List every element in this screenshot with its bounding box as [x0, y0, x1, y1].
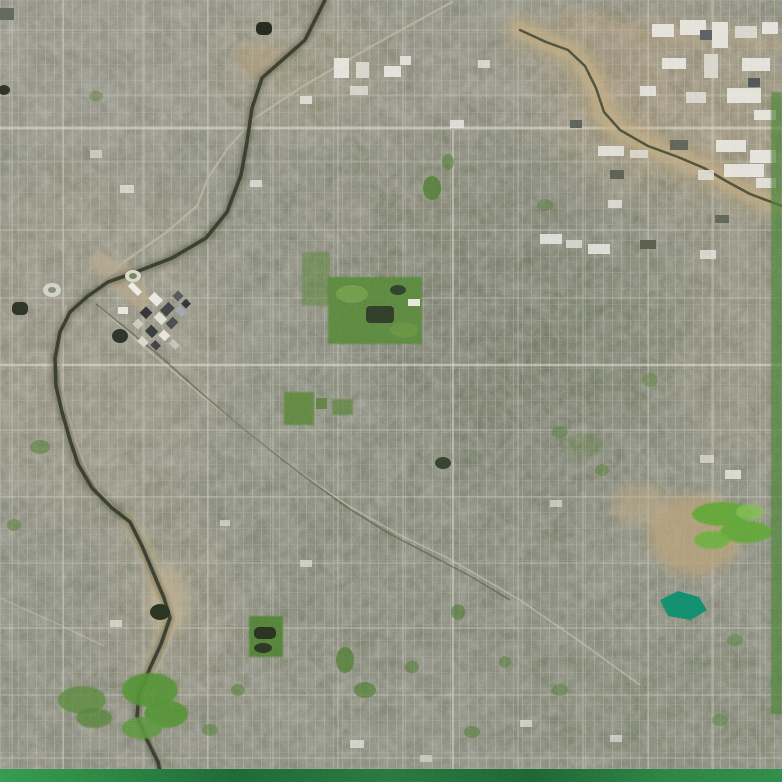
satellite-image	[0, 0, 782, 782]
sensor-grain	[0, 0, 782, 782]
satellite-map-view	[0, 0, 782, 782]
